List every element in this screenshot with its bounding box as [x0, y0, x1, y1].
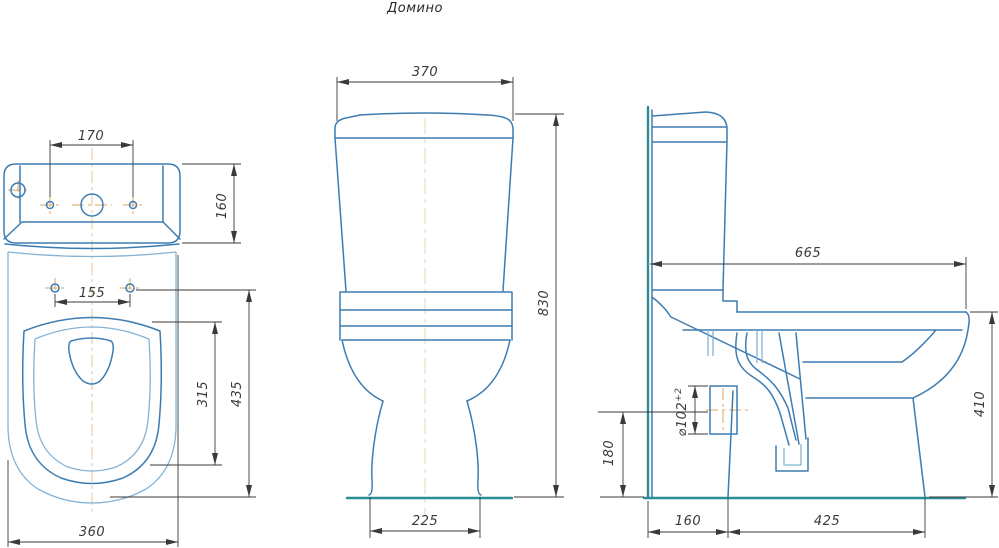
dim-tank-width: 370 — [412, 65, 438, 80]
dim-base-depth: 425 — [814, 514, 840, 529]
dim-bowl-length: 435 — [230, 381, 245, 407]
dim-seat-bolt-spacing: 155 — [79, 286, 105, 301]
drawing-title: Домино — [386, 1, 443, 16]
outlet-diameter-value: ⌀102 — [675, 402, 690, 437]
dim-overall-depth: 665 — [795, 246, 821, 261]
dim-outlet-axis-height: 180 — [602, 440, 617, 466]
side-view-outline — [652, 110, 969, 497]
drawing-canvas: Домино 170 — [0, 0, 999, 548]
outlet-diameter-tolerance: +2 — [674, 388, 684, 402]
dim-bowl-width: 360 — [79, 525, 105, 540]
front-view-dimensions: 370 830 225 — [337, 65, 564, 538]
dim-wall-to-base: 160 — [675, 514, 701, 529]
side-view: 665 410 180 ⌀102+2 160 425 — [598, 107, 998, 538]
dim-tank-depth: 160 — [215, 193, 230, 219]
side-view-centerlines — [706, 388, 748, 432]
top-view-centerlines — [8, 148, 143, 515]
dim-lid-holes-spacing: 170 — [78, 129, 104, 144]
dim-bowl-inner-length: 315 — [196, 381, 211, 407]
dim-base-width: 225 — [412, 514, 438, 529]
dim-outlet-diameter: ⌀102+2 — [674, 388, 690, 437]
front-view-outline — [335, 113, 513, 498]
dim-bowl-height: 410 — [973, 391, 988, 417]
front-view: 370 830 225 — [335, 65, 564, 538]
top-view-dimensions: 170 160 155 315 435 360 — [8, 129, 256, 547]
top-view: 170 160 155 315 435 360 — [4, 129, 256, 547]
technical-drawing: Домино 170 — [0, 0, 999, 548]
dim-overall-height: 830 — [537, 290, 552, 316]
